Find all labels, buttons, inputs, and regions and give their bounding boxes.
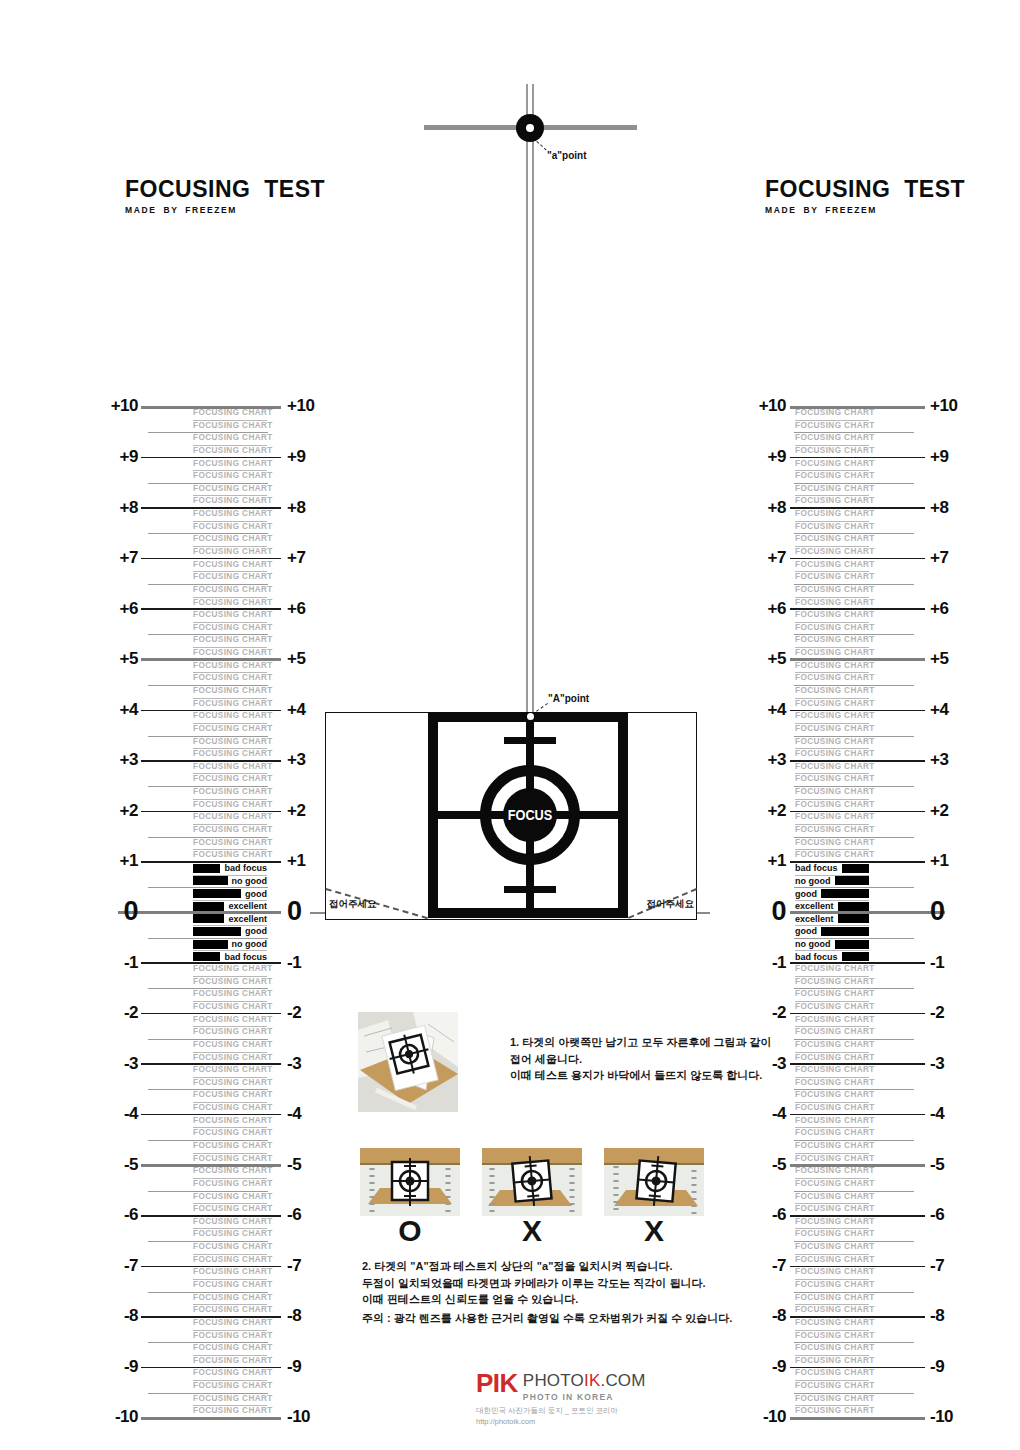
- ruler-quality-row: no good: [795, 938, 869, 951]
- ruler-filler-row: FOCUSING CHART: [193, 786, 267, 799]
- ruler-number-inner: -6: [93, 1205, 138, 1225]
- ruler-filler-row: FOCUSING CHART: [795, 483, 869, 496]
- A-point-dot: [527, 713, 534, 720]
- ruler-number-outer: -8: [930, 1306, 975, 1326]
- ruler-number-outer: -1: [930, 953, 975, 973]
- ruler-filler-row: FOCUSING CHART: [795, 1317, 869, 1330]
- ruler-number-outer: 0: [930, 896, 975, 927]
- example-result-2: X: [482, 1214, 582, 1248]
- ruler-number-outer: +6: [287, 599, 332, 619]
- header-left: FOCUSING TEST MADE BY FREEZEM: [125, 176, 325, 215]
- ruler-filler-row: FOCUSING CHART: [795, 1279, 869, 1292]
- ruler-quality-label: good: [795, 889, 817, 899]
- ruler-number-outer: +8: [287, 498, 332, 518]
- ruler-filler-row: FOCUSING CHART: [193, 963, 267, 976]
- ruler-filler-row: FOCUSING CHART: [795, 723, 869, 736]
- ruler-filler-row: FOCUSING CHART: [795, 1393, 869, 1406]
- ruler-number-inner: +7: [93, 548, 138, 568]
- ruler-number-inner: +8: [741, 498, 786, 518]
- ruler-filler-row: FOCUSING CHART: [193, 1393, 267, 1406]
- ruler-filler-row: FOCUSING CHART: [193, 1254, 267, 1267]
- ruler-number-inner: -1: [741, 953, 786, 973]
- ruler-quality-bar: [193, 889, 241, 898]
- ruler-number-inner: +1: [741, 851, 786, 871]
- ruler-quality-label: no good: [795, 939, 831, 949]
- target-tick-bottom: [504, 886, 556, 893]
- ruler-filler-row: FOCUSING CHART: [193, 1115, 267, 1128]
- ruler-filler-row: FOCUSING CHART: [193, 723, 267, 736]
- ruler-filler-row: FOCUSING CHART: [193, 458, 267, 471]
- ruler-filler-row: FOCUSING CHART: [193, 1279, 267, 1292]
- ruler-quality-row: good: [193, 925, 267, 938]
- ruler-filler-row: FOCUSING CHART: [795, 1039, 869, 1052]
- ruler-quality-bar: [838, 914, 869, 923]
- ruler-quality-bar: [193, 940, 228, 949]
- ruler-number-inner: +10: [741, 396, 786, 416]
- ruler-quality-row: bad focus: [193, 862, 267, 875]
- ruler-number-outer: +10: [287, 396, 332, 416]
- ruler-filler-row: FOCUSING CHART: [193, 533, 267, 546]
- ruler-number-inner: +2: [741, 801, 786, 821]
- top-vertical-guide-line: [526, 84, 534, 712]
- ruler-filler-row: FOCUSING CHART: [795, 799, 869, 812]
- ruler-filler-row: FOCUSING CHART: [193, 799, 267, 812]
- logo-description: 대한민국 사진가들의 둥지 _ 포토인 코리아: [476, 1406, 646, 1416]
- ruler-number-inner: 0: [741, 896, 786, 927]
- ruler-filler-row: FOCUSING CHART: [795, 1165, 869, 1178]
- ruler-number-inner: +3: [93, 750, 138, 770]
- ruler-number-outer: -4: [287, 1104, 332, 1124]
- ruler-number-inner: +9: [93, 447, 138, 467]
- ruler-filler-row: FOCUSING CHART: [193, 710, 267, 723]
- ruler-filler-row: FOCUSING CHART: [795, 420, 869, 433]
- ruler-quality-label: good: [245, 889, 267, 899]
- ruler-quality-label: no good: [232, 876, 268, 886]
- ruler-quality-label: excellent: [228, 914, 267, 924]
- ruler-filler-row: FOCUSING CHART: [193, 748, 267, 761]
- ruler-filler-row: FOCUSING CHART: [193, 1216, 267, 1229]
- page-subtitle: MADE BY FREEZEM: [765, 205, 965, 215]
- ruler-filler-row: FOCUSING CHART: [795, 660, 869, 673]
- step1-line-3: 이때 테스트 용지가 바닥에서 들뜨지 않도록 합니다.: [510, 1067, 772, 1084]
- ruler-filler-row: FOCUSING CHART: [795, 1115, 869, 1128]
- ruler-quality-row: excellent: [193, 900, 267, 913]
- ruler-number-inner: -7: [93, 1256, 138, 1276]
- ruler-filler-row: FOCUSING CHART: [795, 1330, 869, 1343]
- ruler-filler-row: FOCUSING CHART: [193, 672, 267, 685]
- ruler-number-outer: +6: [930, 599, 975, 619]
- ruler-number-inner: -9: [93, 1357, 138, 1377]
- ruler-quality-label: excellent: [795, 914, 834, 924]
- example-photo-3: [604, 1148, 704, 1220]
- logo-pik-text: PIK: [476, 1368, 518, 1399]
- ruler-quality-row: no good: [795, 875, 869, 888]
- ruler-filler-row: FOCUSING CHART: [193, 685, 267, 698]
- A-point-label: "A"point: [548, 693, 589, 704]
- ruler-quality-row: bad focus: [795, 862, 869, 875]
- warning-text: 주의 : 광각 렌즈를 사용한 근거리 촬영일 수록 오차범위가 커질 수 있습…: [362, 1310, 732, 1327]
- ruler-filler-row: FOCUSING CHART: [193, 1380, 267, 1393]
- ruler-quality-label: excellent: [795, 901, 834, 911]
- ruler-number-inner: -10: [93, 1407, 138, 1427]
- step2-line-2: 두점이 일치되었을때 타겟면과 카메라가 이루는 각도는 직각이 됩니다.: [362, 1275, 705, 1292]
- ruler-filler-row: FOCUSING CHART: [795, 1254, 869, 1267]
- ruler-quality-bar: [835, 876, 870, 885]
- ruler-quality-bar: [835, 940, 870, 949]
- ruler-filler-row: FOCUSING CHART: [193, 483, 267, 496]
- ruler-filler-row: FOCUSING CHART: [193, 1241, 267, 1254]
- example-photo-2: [482, 1148, 582, 1220]
- ruler-quality-label: excellent: [228, 901, 267, 911]
- ruler-number-outer: +8: [930, 498, 975, 518]
- ruler-quality-label: no good: [795, 876, 831, 886]
- ruler-filler-row: FOCUSING CHART: [795, 736, 869, 749]
- ruler-quality-bar: [842, 864, 869, 873]
- logo-brand-photo: PHOTO: [523, 1371, 584, 1390]
- ruler-quality-row: good: [795, 887, 869, 900]
- ruler-filler-row: FOCUSING CHART: [795, 584, 869, 597]
- logo-brand-ik: IK: [584, 1371, 600, 1390]
- ruler-filler-row: FOCUSING CHART: [795, 407, 869, 420]
- ruler-number-outer: +5: [930, 649, 975, 669]
- ruler-filler-row: FOCUSING CHART: [795, 1077, 869, 1090]
- ruler-filler-row: FOCUSING CHART: [795, 1380, 869, 1393]
- ruler-filler-row: FOCUSING CHART: [795, 1153, 869, 1166]
- ruler-number-outer: -2: [930, 1003, 975, 1023]
- ruler-quality-label: good: [795, 926, 817, 936]
- ruler-number-inner: -5: [741, 1155, 786, 1175]
- ruler-filler-row: FOCUSING CHART: [193, 420, 267, 433]
- ruler-filler-row: FOCUSING CHART: [193, 1292, 267, 1305]
- ruler-filler-row: FOCUSING CHART: [193, 698, 267, 711]
- ruler-number-outer: +1: [930, 851, 975, 871]
- ruler-filler-row: FOCUSING CHART: [193, 1266, 267, 1279]
- ruler-number-inner: -8: [93, 1306, 138, 1326]
- ruler-filler-row: FOCUSING CHART: [193, 559, 267, 572]
- ruler-number-inner: +6: [741, 599, 786, 619]
- ruler-number-outer: +4: [930, 700, 975, 720]
- example-result-1: O: [360, 1214, 460, 1248]
- ruler-filler-row: FOCUSING CHART: [795, 597, 869, 610]
- ruler-number-inner: -9: [741, 1357, 786, 1377]
- ruler-number-outer: -6: [287, 1205, 332, 1225]
- ruler-filler-row: FOCUSING CHART: [193, 1026, 267, 1039]
- step1-line-2: 접어 세웁니다.: [510, 1051, 772, 1068]
- ruler-filler-row: FOCUSING CHART: [795, 1241, 869, 1254]
- ruler-filler-row: FOCUSING CHART: [795, 1266, 869, 1279]
- ruler-filler-row: FOCUSING CHART: [193, 546, 267, 559]
- ruler-quality-bar: [193, 927, 241, 936]
- ruler-filler-row: FOCUSING CHART: [795, 1014, 869, 1027]
- ruler-filler-row: FOCUSING CHART: [193, 1367, 267, 1380]
- ruler-filler-row: FOCUSING CHART: [193, 1102, 267, 1115]
- ruler-filler-row: FOCUSING CHART: [193, 1317, 267, 1330]
- ruler-filler-row: FOCUSING CHART: [193, 811, 267, 824]
- ruler-filler-row: FOCUSING CHART: [795, 1127, 869, 1140]
- ruler-number-outer: +7: [930, 548, 975, 568]
- ruler-filler-row: FOCUSING CHART: [193, 1342, 267, 1355]
- ruler-filler-row: FOCUSING CHART: [193, 1228, 267, 1241]
- ruler-filler-row: FOCUSING CHART: [795, 495, 869, 508]
- ruler-filler-row: FOCUSING CHART: [795, 458, 869, 471]
- ruler-filler-row: FOCUSING CHART: [193, 571, 267, 584]
- ruler-filler-row: FOCUSING CHART: [795, 710, 869, 723]
- ruler-filler-row: FOCUSING CHART: [193, 470, 267, 483]
- ruler-zero-connector: [697, 912, 710, 914]
- ruler-number-inner: 0: [93, 896, 138, 927]
- ruler-filler-row: FOCUSING CHART: [193, 1039, 267, 1052]
- ruler-number-inner: -4: [741, 1104, 786, 1124]
- ruler-number-inner: -2: [93, 1003, 138, 1023]
- ruler-number-outer: +9: [930, 447, 975, 467]
- ruler-filler-row: FOCUSING CHART: [795, 470, 869, 483]
- ruler-quality-row: excellent: [795, 913, 869, 926]
- ruler-quality-row: good: [795, 925, 869, 938]
- ruler-quality-bar: [193, 864, 220, 873]
- page-subtitle: MADE BY FREEZEM: [125, 205, 325, 215]
- ruler-filler-row: FOCUSING CHART: [795, 963, 869, 976]
- ruler-quality-label: bad focus: [224, 863, 267, 873]
- ruler-filler-row: FOCUSING CHART: [193, 1064, 267, 1077]
- ruler-number-outer: -7: [930, 1256, 975, 1276]
- ruler-filler-row: FOCUSING CHART: [193, 407, 267, 420]
- ruler-quality-bar: [193, 876, 228, 885]
- ruler-number-outer: -9: [930, 1357, 975, 1377]
- ruler-filler-row: FOCUSING CHART: [193, 976, 267, 989]
- ruler-filler-row: FOCUSING CHART: [193, 1355, 267, 1368]
- ruler-filler-row: FOCUSING CHART: [193, 432, 267, 445]
- ruler-filler-row: FOCUSING CHART: [795, 1216, 869, 1229]
- ruler-filler-row: FOCUSING CHART: [795, 1178, 869, 1191]
- ruler-filler-row: FOCUSING CHART: [193, 849, 267, 862]
- ruler-number-outer: -2: [287, 1003, 332, 1023]
- ruler-quality-label: bad focus: [795, 952, 838, 962]
- ruler-filler-row: FOCUSING CHART: [193, 609, 267, 622]
- target-center-disc: FOCUS: [503, 788, 557, 842]
- ruler-filler-row: FOCUSING CHART: [193, 761, 267, 774]
- ruler-filler-row: FOCUSING CHART: [193, 1001, 267, 1014]
- ruler-number-outer: -3: [930, 1054, 975, 1074]
- ruler-number-outer: -5: [287, 1155, 332, 1175]
- ruler-filler-row: FOCUSING CHART: [795, 533, 869, 546]
- logo-tagline: PHOTO IN KOREA: [523, 1392, 646, 1402]
- ruler-quality-label: no good: [232, 939, 268, 949]
- ruler-filler-row: FOCUSING CHART: [193, 1165, 267, 1178]
- ruler-filler-row: FOCUSING CHART: [795, 1089, 869, 1102]
- ruler-filler-row: FOCUSING CHART: [193, 660, 267, 673]
- ruler-filler-row: FOCUSING CHART: [795, 432, 869, 445]
- ruler-filler-row: FOCUSING CHART: [795, 786, 869, 799]
- ruler-filler-row: FOCUSING CHART: [193, 647, 267, 660]
- ruler-filler-row: FOCUSING CHART: [795, 1140, 869, 1153]
- ruler-filler-row: FOCUSING CHART: [795, 546, 869, 559]
- ruler-quality-bar: [838, 902, 869, 911]
- ruler-number-inner: -5: [93, 1155, 138, 1175]
- ruler-filler-row: FOCUSING CHART: [795, 1304, 869, 1317]
- ruler-filler-row: FOCUSING CHART: [193, 1304, 267, 1317]
- A-point-pointer-line: [536, 703, 548, 712]
- ruler-filler-row: FOCUSING CHART: [795, 1355, 869, 1368]
- ruler-number-inner: +7: [741, 548, 786, 568]
- ruler-filler-row: FOCUSING CHART: [795, 1367, 869, 1380]
- ruler-filler-row: FOCUSING CHART: [193, 508, 267, 521]
- ruler-number-outer: +2: [930, 801, 975, 821]
- ruler-number-inner: -7: [741, 1256, 786, 1276]
- ruler-number-outer: -10: [287, 1407, 332, 1427]
- ruler-filler-row: FOCUSING CHART: [795, 837, 869, 850]
- ruler-filler-row: FOCUSING CHART: [795, 1405, 869, 1418]
- ruler-filler-row: FOCUSING CHART: [193, 736, 267, 749]
- ruler-filler-row: FOCUSING CHART: [795, 824, 869, 837]
- ruler-filler-row: FOCUSING CHART: [193, 1178, 267, 1191]
- ruler-number-outer: +3: [930, 750, 975, 770]
- ruler-filler-row: FOCUSING CHART: [193, 1153, 267, 1166]
- ruler-number-outer: -1: [287, 953, 332, 973]
- a-point-marker-hole: [526, 124, 534, 132]
- ruler-quality-label: bad focus: [795, 863, 838, 873]
- ruler-filler-row: FOCUSING CHART: [193, 495, 267, 508]
- ruler-filler-row: FOCUSING CHART: [193, 584, 267, 597]
- ruler-filler-row: FOCUSING CHART: [795, 1292, 869, 1305]
- ruler-quality-row: no good: [193, 875, 267, 888]
- ruler-filler-row: FOCUSING CHART: [795, 685, 869, 698]
- ruler-filler-row: FOCUSING CHART: [193, 1140, 267, 1153]
- ruler-quality-label: bad focus: [224, 952, 267, 962]
- ruler-number-outer: +10: [930, 396, 975, 416]
- ruler-number-outer: -7: [287, 1256, 332, 1276]
- ruler-number-inner: +5: [93, 649, 138, 669]
- ruler-number-inner: +6: [93, 599, 138, 619]
- ruler-filler-row: FOCUSING CHART: [795, 508, 869, 521]
- ruler-quality-bar: [821, 889, 869, 898]
- ruler-filler-row: FOCUSING CHART: [795, 988, 869, 1001]
- ruler-number-outer: +5: [287, 649, 332, 669]
- ruler-filler-row: FOCUSING CHART: [795, 1342, 869, 1355]
- ruler-quality-bar: [193, 914, 224, 923]
- example-photo-1: [360, 1148, 460, 1220]
- ruler-filler-row: FOCUSING CHART: [795, 1001, 869, 1014]
- ruler-number-inner: -6: [741, 1205, 786, 1225]
- page-title: FOCUSING TEST: [765, 176, 965, 203]
- ruler-number-inner: +4: [93, 700, 138, 720]
- ruler-filler-row: FOCUSING CHART: [193, 634, 267, 647]
- ruler-filler-row: FOCUSING CHART: [193, 521, 267, 534]
- ruler-number-inner: +3: [741, 750, 786, 770]
- logo-brand-com: .COM: [600, 1371, 645, 1390]
- step1-line-1: 1. 타겟의 아랫쪽만 남기고 모두 자른후에 그림과 같이: [510, 1034, 772, 1051]
- ruler-filler-row: FOCUSING CHART: [795, 1026, 869, 1039]
- focusing-test-sheet: "a"point FOCUSING TEST MADE BY FREEZEM F…: [0, 0, 1020, 1450]
- ruler-filler-row: FOCUSING CHART: [795, 521, 869, 534]
- ruler-filler-row: FOCUSING CHART: [795, 761, 869, 774]
- ruler-filler-row: FOCUSING CHART: [795, 647, 869, 660]
- ruler-filler-row: FOCUSING CHART: [193, 837, 267, 850]
- example-result-3: X: [604, 1214, 704, 1248]
- ruler-filler-row: FOCUSING CHART: [193, 622, 267, 635]
- ruler-filler-row: FOCUSING CHART: [795, 1064, 869, 1077]
- fold-label-right: 접어주세요: [644, 898, 694, 911]
- ruler-number-inner: -2: [741, 1003, 786, 1023]
- ruler-filler-row: FOCUSING CHART: [795, 1191, 869, 1204]
- ruler-filler-row: FOCUSING CHART: [795, 1102, 869, 1115]
- logo: PIK PHOTOIK.COM PHOTO IN KOREA 대한민국 사진가들…: [476, 1368, 646, 1426]
- ruler-number-outer: -8: [287, 1306, 332, 1326]
- ruler-filler-row: FOCUSING CHART: [193, 1077, 267, 1090]
- ruler-quality-row: bad focus: [193, 950, 267, 963]
- ruler-quality-row: excellent: [193, 913, 267, 926]
- a-point-label: "a"point: [547, 150, 586, 161]
- ruler-filler-row: FOCUSING CHART: [795, 976, 869, 989]
- step2-line-1: 2. 타겟의 "A"점과 테스트지 상단의 "a"점을 일치시켜 찍습니다.: [362, 1258, 705, 1275]
- ruler-filler-row: FOCUSING CHART: [193, 1405, 267, 1418]
- step1-text: 1. 타겟의 아랫쪽만 남기고 모두 자른후에 그림과 같이 접어 세웁니다. …: [510, 1034, 772, 1084]
- ruler-filler-row: FOCUSING CHART: [795, 849, 869, 862]
- ruler-filler-row: FOCUSING CHART: [795, 445, 869, 458]
- ruler-filler-row: FOCUSING CHART: [795, 634, 869, 647]
- ruler-number-outer: -6: [930, 1205, 975, 1225]
- ruler-filler-row: FOCUSING CHART: [193, 1014, 267, 1027]
- ruler-number-outer: -9: [287, 1357, 332, 1377]
- ruler-filler-row: FOCUSING CHART: [193, 597, 267, 610]
- ruler-number-inner: +5: [741, 649, 786, 669]
- step2-text: 2. 타겟의 "A"점과 테스트지 상단의 "a"점을 일치시켜 찍습니다. 두…: [362, 1258, 705, 1308]
- target-tick-top: [504, 737, 556, 744]
- ruler-quality-bar: [193, 952, 220, 961]
- ruler-quality-bar: [821, 927, 869, 936]
- ruler-number-inner: -8: [741, 1306, 786, 1326]
- ruler-filler-row: FOCUSING CHART: [795, 1203, 869, 1216]
- ruler-quality-bar: [193, 902, 224, 911]
- step1-photo: [358, 1012, 458, 1116]
- focus-label: FOCUS: [507, 788, 553, 842]
- ruler-filler-row: FOCUSING CHART: [795, 571, 869, 584]
- ruler-filler-row: FOCUSING CHART: [795, 748, 869, 761]
- ruler-filler-row: FOCUSING CHART: [193, 824, 267, 837]
- ruler-number-inner: -10: [741, 1407, 786, 1427]
- ruler-quality-row: no good: [193, 938, 267, 951]
- ruler-number-inner: +8: [93, 498, 138, 518]
- step2-line-3: 이때 핀테스트의 신뢰도를 얻을 수 있습니다.: [362, 1291, 705, 1308]
- ruler-filler-row: FOCUSING CHART: [193, 1203, 267, 1216]
- ruler-filler-row: FOCUSING CHART: [795, 773, 869, 786]
- ruler-filler-row: FOCUSING CHART: [193, 1191, 267, 1204]
- ruler-number-outer: -10: [930, 1407, 975, 1427]
- ruler-number-inner: +9: [741, 447, 786, 467]
- ruler-number-outer: -5: [930, 1155, 975, 1175]
- ruler-quality-label: good: [245, 926, 267, 936]
- ruler-number-inner: +10: [93, 396, 138, 416]
- ruler-number-inner: +2: [93, 801, 138, 821]
- ruler-filler-row: FOCUSING CHART: [193, 1052, 267, 1065]
- ruler-filler-row: FOCUSING CHART: [795, 811, 869, 824]
- logo-url: http://photoik.com: [476, 1417, 646, 1426]
- ruler-quality-row: good: [193, 887, 267, 900]
- ruler-filler-row: FOCUSING CHART: [795, 622, 869, 635]
- ruler-filler-row: FOCUSING CHART: [193, 988, 267, 1001]
- a-point-pointer-line: [536, 141, 546, 150]
- page-title: FOCUSING TEST: [125, 176, 325, 203]
- header-right: FOCUSING TEST MADE BY FREEZEM: [765, 176, 965, 215]
- ruler-filler-row: FOCUSING CHART: [193, 1127, 267, 1140]
- ruler-number-inner: +1: [93, 851, 138, 871]
- ruler-number-inner: +4: [741, 700, 786, 720]
- ruler-filler-row: FOCUSING CHART: [795, 672, 869, 685]
- ruler-quality-row: excellent: [795, 900, 869, 913]
- ruler-number-inner: -4: [93, 1104, 138, 1124]
- ruler-filler-row: FOCUSING CHART: [795, 1228, 869, 1241]
- ruler-filler-row: FOCUSING CHART: [193, 1089, 267, 1102]
- ruler-quality-bar: [842, 952, 869, 961]
